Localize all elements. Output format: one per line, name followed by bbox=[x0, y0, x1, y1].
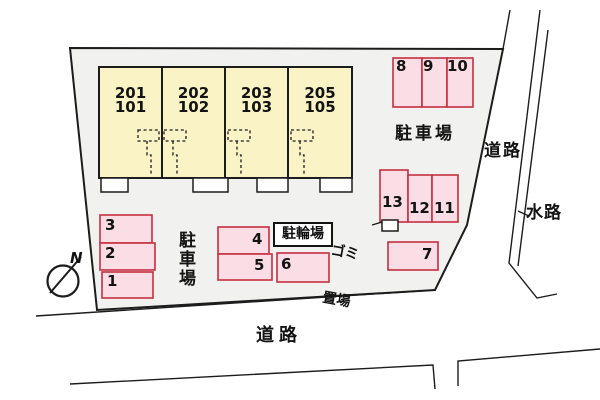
entrance-step-1 bbox=[101, 178, 128, 192]
road-right-edge-line bbox=[503, 10, 510, 49]
garbage-bin bbox=[382, 220, 398, 231]
unit-label-203-103: 203103 bbox=[225, 86, 288, 114]
space-number-13: 13 bbox=[382, 195, 403, 210]
space-number-2: 2 bbox=[105, 246, 115, 261]
road-branch-line bbox=[458, 349, 600, 386]
entrance-step-2 bbox=[193, 178, 228, 192]
unit-label-201-101: 201101 bbox=[99, 86, 162, 114]
unit-label-205-105: 205105 bbox=[288, 86, 352, 114]
parking-area-label-upper: 駐車場 bbox=[395, 126, 455, 143]
space-number-1: 1 bbox=[107, 274, 117, 289]
space-number-5: 5 bbox=[254, 258, 264, 273]
space-number-6: 6 bbox=[281, 257, 291, 272]
entrance-step-3 bbox=[257, 178, 288, 192]
compass-north-label: N bbox=[70, 251, 83, 266]
road-bottom-label: 道路 bbox=[256, 327, 302, 345]
bicycle-parking-box: 駐輪場 bbox=[273, 222, 333, 247]
parking-area-label-lower: 駐車場 bbox=[176, 231, 193, 288]
waterway-label: 水路 bbox=[526, 205, 562, 222]
space-number-8: 8 bbox=[396, 59, 406, 74]
space-number-9: 9 bbox=[423, 59, 433, 74]
space-number-11: 11 bbox=[434, 201, 455, 216]
road-right-label: 道路 bbox=[484, 143, 522, 160]
bicycle-parking-label: 駐輪場 bbox=[282, 226, 324, 242]
space-number-12: 12 bbox=[409, 201, 430, 216]
unit-label-202-102: 202102 bbox=[162, 86, 225, 114]
space-number-10: 10 bbox=[447, 59, 468, 74]
entrance-step-4 bbox=[320, 178, 352, 192]
space-number-3: 3 bbox=[105, 218, 115, 233]
site-plan: 201101 202102 203103 205105 1 2 3 4 5 6 … bbox=[0, 0, 600, 400]
space-number-4: 4 bbox=[252, 232, 262, 247]
space-number-7: 7 bbox=[422, 247, 432, 262]
road-bottom-lower-line bbox=[70, 365, 435, 389]
